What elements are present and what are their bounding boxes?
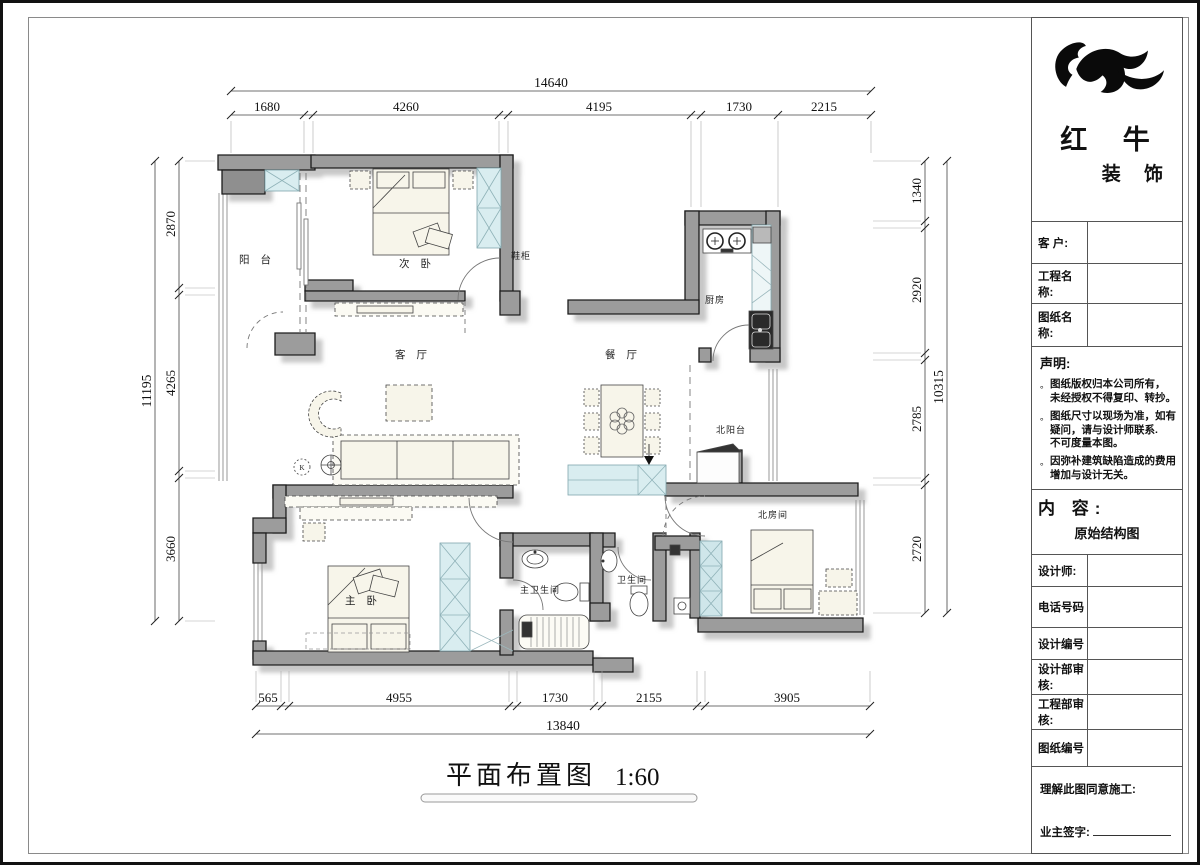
furniture bbox=[285, 169, 857, 652]
bullet: 。 bbox=[1040, 455, 1050, 483]
dim-right-total: 10315 bbox=[931, 370, 946, 404]
dim-bottom-total: 13840 bbox=[546, 718, 580, 733]
bed-north-room bbox=[751, 530, 813, 613]
brand-section: 红 牛 装 饰 bbox=[1032, 18, 1182, 222]
room-label-master-bedroom: 主 卧 bbox=[345, 594, 381, 607]
dim-top-seg: 2215 bbox=[811, 99, 837, 114]
room-label-north-room: 北房间 bbox=[758, 509, 788, 520]
statement-line: 图纸尺寸以现场为准，如有 bbox=[1050, 410, 1176, 422]
dim-bottom-seg: 1730 bbox=[542, 690, 568, 705]
fridge bbox=[753, 227, 771, 243]
drawing-name-label: 图纸名称: bbox=[1032, 304, 1088, 346]
bed-master-bedroom bbox=[328, 566, 409, 652]
owner-signature-line[interactable] bbox=[1093, 823, 1171, 836]
statement-line: 图纸版权归本公司所有， bbox=[1050, 378, 1166, 390]
signature-section: 理解此图同意施工: 业主签字: bbox=[1032, 767, 1182, 853]
project-name-row: 工程名称: bbox=[1032, 264, 1182, 304]
drawing-sheet: 14640 1680 4260 4195 1730 2215 11195 287… bbox=[0, 0, 1200, 865]
dim-left-seg: 2870 bbox=[163, 211, 178, 237]
room-label-second-bedroom: 次 卧 bbox=[399, 257, 435, 270]
design-review-label: 设计部审核: bbox=[1032, 660, 1088, 694]
drawing-title: 平面布置图 bbox=[446, 761, 596, 790]
designer-label: 设计师: bbox=[1032, 555, 1088, 586]
dim-bottom-seg: 565 bbox=[258, 690, 278, 705]
drawing-number-label: 图纸编号 bbox=[1032, 730, 1088, 766]
statement-section: 声明: 。 图纸版权归本公司所有， 未经授权不得复印、转抄。 。 图纸尺寸以现场… bbox=[1032, 347, 1182, 490]
dim-bottom-seg: 4955 bbox=[386, 690, 412, 705]
room-label-bathroom: 卫生间 bbox=[617, 574, 647, 585]
dim-bottom-seg: 2155 bbox=[636, 690, 662, 705]
washing-machine bbox=[697, 444, 741, 483]
drawing-scale: 1:60 bbox=[615, 764, 659, 791]
dim-left-seg: 3660 bbox=[163, 536, 178, 562]
statement-item: 。 图纸尺寸以现场为准，如有 疑问，请与设计师联系. 不可度量本图。 bbox=[1040, 410, 1176, 452]
floor-plan: 14640 1680 4260 4195 1730 2215 11195 287… bbox=[28, 17, 1031, 854]
dresser bbox=[819, 591, 857, 615]
room-label-master-bathroom: 主卫生间 bbox=[520, 584, 560, 595]
dim-right-seg: 2920 bbox=[909, 277, 924, 303]
dim-left-total: 11195 bbox=[139, 374, 154, 407]
designer-row: 设计师: bbox=[1032, 555, 1182, 587]
phone-label: 电话号码 bbox=[1032, 587, 1088, 627]
room-label-north-balcony: 北阳台 bbox=[716, 424, 746, 435]
phone-row: 电话号码 bbox=[1032, 587, 1182, 628]
sofa bbox=[333, 435, 519, 485]
drawing-name-row: 图纸名称: bbox=[1032, 304, 1182, 347]
bullet: 。 bbox=[1040, 378, 1050, 406]
statement-line: 未经授权不得复印、转抄。 bbox=[1050, 392, 1176, 404]
bed-second-bedroom bbox=[373, 169, 452, 255]
design-number-label: 设计编号 bbox=[1032, 628, 1088, 659]
agreement-label: 理解此图同意施工: bbox=[1040, 781, 1176, 797]
room-label-balcony: 阳 台 bbox=[239, 253, 275, 266]
design-number-row: 设计编号 bbox=[1032, 628, 1182, 660]
engineering-review-row: 工程部审核: bbox=[1032, 695, 1182, 730]
tv-console-living bbox=[335, 303, 463, 316]
dim-top-seg: 4195 bbox=[586, 99, 612, 114]
dim-right-seg: 1340 bbox=[909, 178, 924, 204]
dim-right-seg: 2785 bbox=[909, 406, 924, 432]
coffee-table bbox=[386, 385, 432, 421]
tv-console-master bbox=[285, 496, 497, 507]
statement-line: 因弥补建筑缺陷造成的费用 bbox=[1050, 455, 1176, 467]
dim-top-seg: 4260 bbox=[393, 99, 419, 114]
stove bbox=[703, 229, 751, 253]
ceiling-fan-symbol bbox=[321, 455, 341, 475]
bullet: 。 bbox=[1040, 410, 1050, 452]
brand-logo-icon bbox=[1043, 18, 1171, 120]
engineering-review-label: 工程部审核: bbox=[1032, 695, 1088, 729]
customer-label: 客 户: bbox=[1032, 222, 1088, 263]
title-block: 红 牛 装 饰 客 户: 工程名称: 图纸名称: 声明: 。 图纸版权归本公司所… bbox=[1031, 17, 1183, 854]
master-bath-fixtures bbox=[519, 550, 589, 649]
project-name-label: 工程名称: bbox=[1032, 264, 1088, 303]
dim-left-seg: 4265 bbox=[163, 370, 178, 396]
shower-head bbox=[670, 545, 680, 555]
customer-row: 客 户: bbox=[1032, 222, 1182, 264]
sheet-title: 平面布置图 1:60 bbox=[421, 761, 697, 802]
design-review-row: 设计部审核: bbox=[1032, 660, 1182, 695]
dim-bottom-seg: 3905 bbox=[774, 690, 800, 705]
statement-title: 声明: bbox=[1040, 353, 1176, 372]
drawing-number-row: 图纸编号 bbox=[1032, 730, 1182, 767]
kitchen-sink bbox=[749, 311, 773, 349]
statement-line: 疑问，请与设计师联系. bbox=[1050, 424, 1158, 436]
dim-top-seg: 1680 bbox=[254, 99, 280, 114]
content-section: 内 容: 原始结构图 bbox=[1032, 490, 1182, 555]
owner-signature-label: 业主签字: bbox=[1040, 827, 1090, 839]
content-label: 内 容: bbox=[1038, 494, 1176, 519]
room-label-kitchen: 厨房 bbox=[705, 294, 725, 305]
brand-subname: 装 饰 bbox=[1102, 159, 1172, 186]
statement-item: 。 图纸版权归本公司所有， 未经授权不得复印、转抄。 bbox=[1040, 378, 1176, 406]
room-label-dining-room: 餐 厅 bbox=[605, 348, 641, 361]
content-value: 原始结构图 bbox=[1038, 523, 1176, 542]
statement-line: 不可度量本图。 bbox=[1050, 437, 1124, 449]
statement-item: 。 因弥补建筑缺陷造成的费用 增加与设计无关。 bbox=[1040, 455, 1176, 483]
dim-top-seg: 1730 bbox=[726, 99, 752, 114]
armchair bbox=[309, 391, 341, 437]
room-label-shoe-cabinet: 鞋柜 bbox=[511, 250, 531, 261]
brand-name: 红 牛 bbox=[1060, 118, 1164, 157]
dim-right-seg: 2720 bbox=[909, 536, 924, 562]
k-symbol-label: K bbox=[299, 464, 304, 472]
statement-line: 增加与设计无关。 bbox=[1050, 469, 1134, 481]
room-label-living-room: 客 厅 bbox=[395, 348, 431, 361]
dim-top-total: 14640 bbox=[534, 75, 568, 90]
